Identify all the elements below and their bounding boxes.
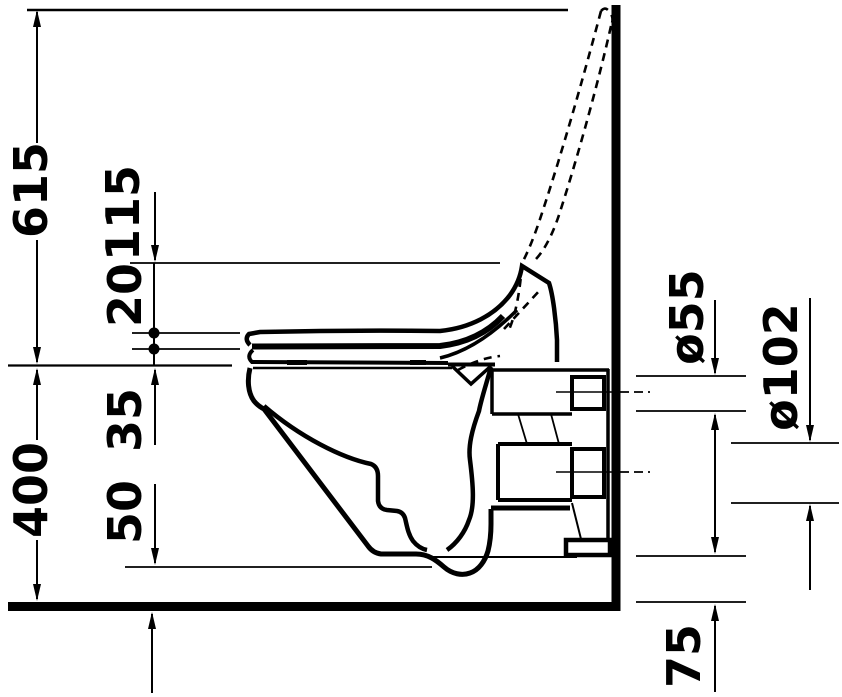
seat-bumper-rear <box>410 360 426 365</box>
strut-line-1 <box>518 414 527 444</box>
dim-20-label: 20 <box>98 263 152 327</box>
open-lid-top-cap <box>601 9 613 26</box>
arrow-35-up <box>151 368 159 385</box>
dim-75-label: 75 <box>657 624 711 688</box>
seat-and-lid <box>247 266 557 365</box>
trap-inner-curve <box>447 367 491 550</box>
outlet-housing-slant <box>572 503 581 539</box>
strut-line-2 <box>551 414 559 444</box>
drain-fitting <box>572 449 604 497</box>
dim-55-label: ø55 <box>660 269 714 365</box>
arrow-115-down <box>151 245 159 262</box>
arrow-102-up <box>806 504 814 521</box>
wall-connections <box>492 370 650 500</box>
arrow-below-floor-up <box>148 612 156 629</box>
dim-400-label: 400 <box>4 442 58 538</box>
open-lid-outer-edge <box>522 11 601 263</box>
dim-115-label: 115 <box>96 165 150 261</box>
arrow-400-down <box>33 584 41 601</box>
open-lid-inner-edge <box>533 26 611 262</box>
technical-drawing-page: 615 115 20 35 400 50 ø55 ø102 75 <box>0 0 842 697</box>
supply-fitting <box>572 377 604 409</box>
seat-bumper-front <box>287 360 307 365</box>
wall-spacer-block <box>566 540 610 555</box>
bowl-inner-shell <box>264 406 427 550</box>
ceramic-bowl <box>248 366 610 574</box>
chain-dot-lid <box>149 328 160 339</box>
arrow-615-up <box>33 10 41 27</box>
arrow-middle-down <box>711 537 719 554</box>
dim-50-label: 50 <box>98 480 152 544</box>
dim-35-label: 35 <box>98 388 152 452</box>
chain-dot-seat <box>149 344 160 355</box>
arrow-50-down <box>151 548 159 565</box>
arrow-400-up <box>33 368 41 385</box>
arrow-75-up <box>711 604 719 621</box>
open-lid-dashed <box>458 9 613 370</box>
arrow-615-down <box>33 347 41 364</box>
arrow-middle-up <box>711 413 719 430</box>
dim-102-label: ø102 <box>754 303 808 431</box>
toilet-side-elevation: 615 115 20 35 400 50 ø55 ø102 75 <box>0 0 842 697</box>
dim-615-label: 615 <box>4 142 58 238</box>
